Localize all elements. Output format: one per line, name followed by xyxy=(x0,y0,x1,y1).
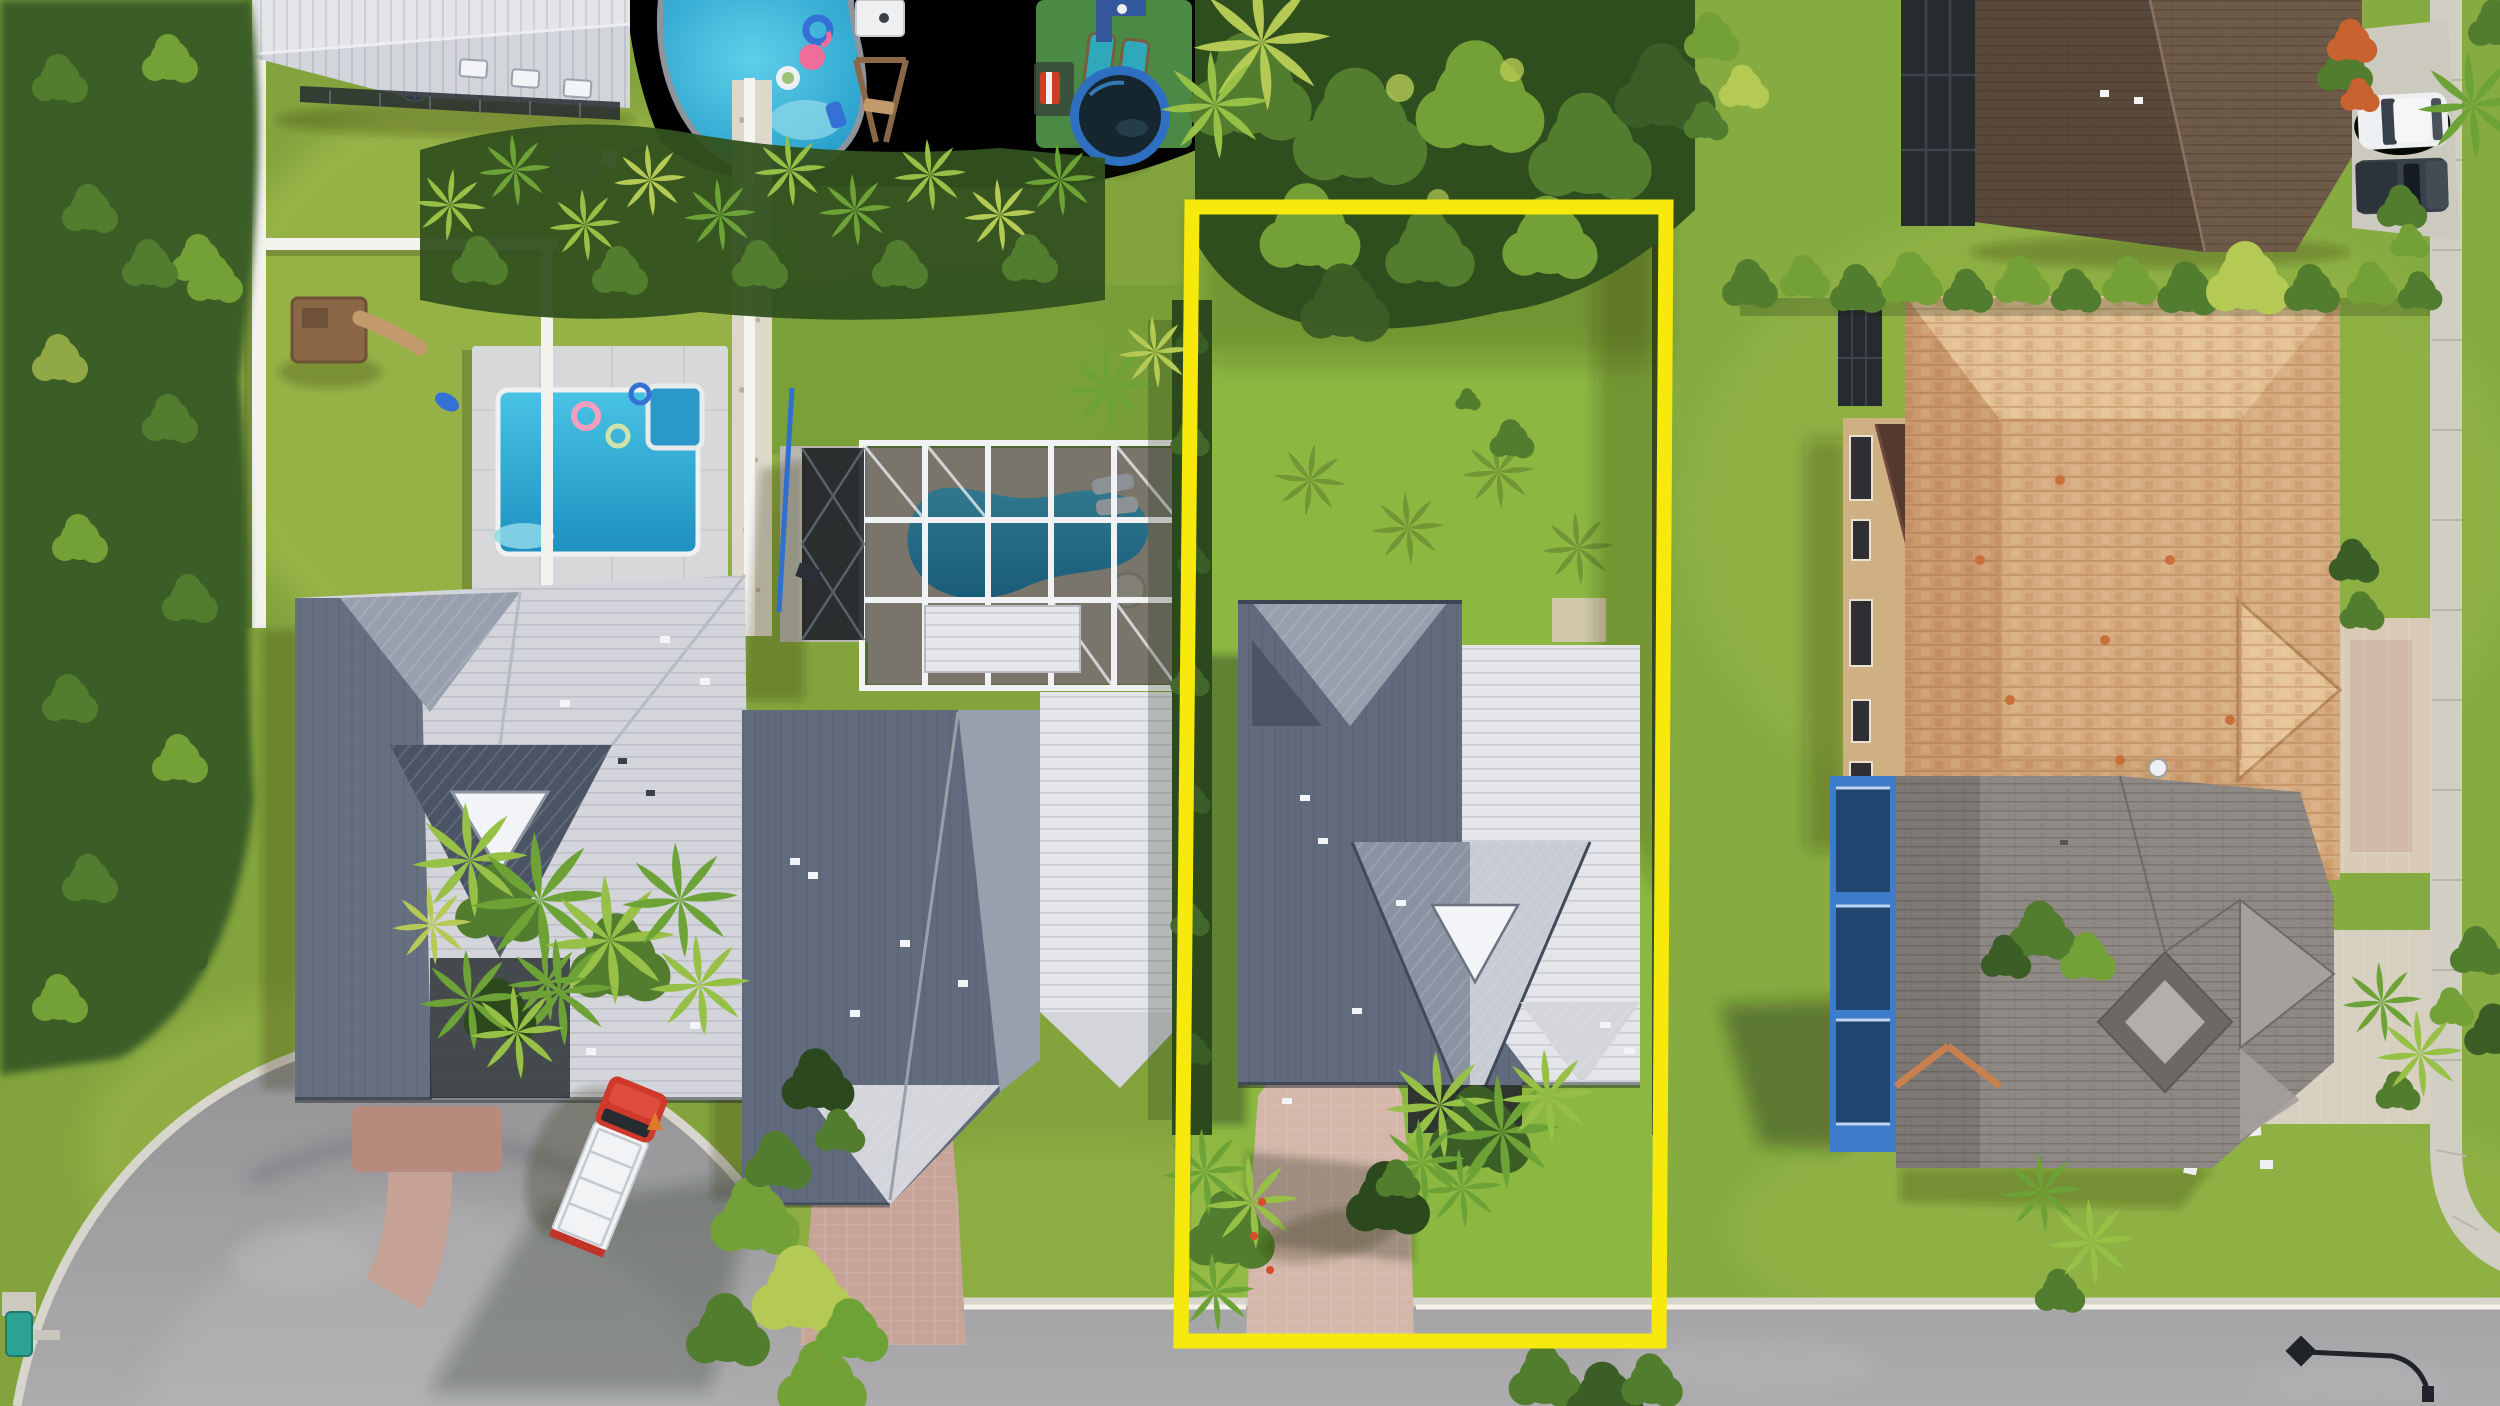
skylight xyxy=(459,59,487,78)
spa xyxy=(648,386,702,448)
woodland-left xyxy=(0,0,259,1075)
windows xyxy=(1850,436,1872,820)
dark-screen-section xyxy=(802,448,864,640)
screen-enclosure xyxy=(1901,0,1975,226)
flamingo-float xyxy=(799,44,825,70)
entry-court xyxy=(352,1106,502,1172)
aerial-photo xyxy=(0,0,2500,1406)
tropical-hedge xyxy=(408,124,1105,319)
subject-house xyxy=(1238,602,1640,1133)
skylight xyxy=(563,79,591,98)
house-top-right xyxy=(1901,0,2460,252)
satellite-dish xyxy=(2149,759,2167,777)
house-top-left xyxy=(255,0,630,120)
skylight xyxy=(511,69,539,88)
